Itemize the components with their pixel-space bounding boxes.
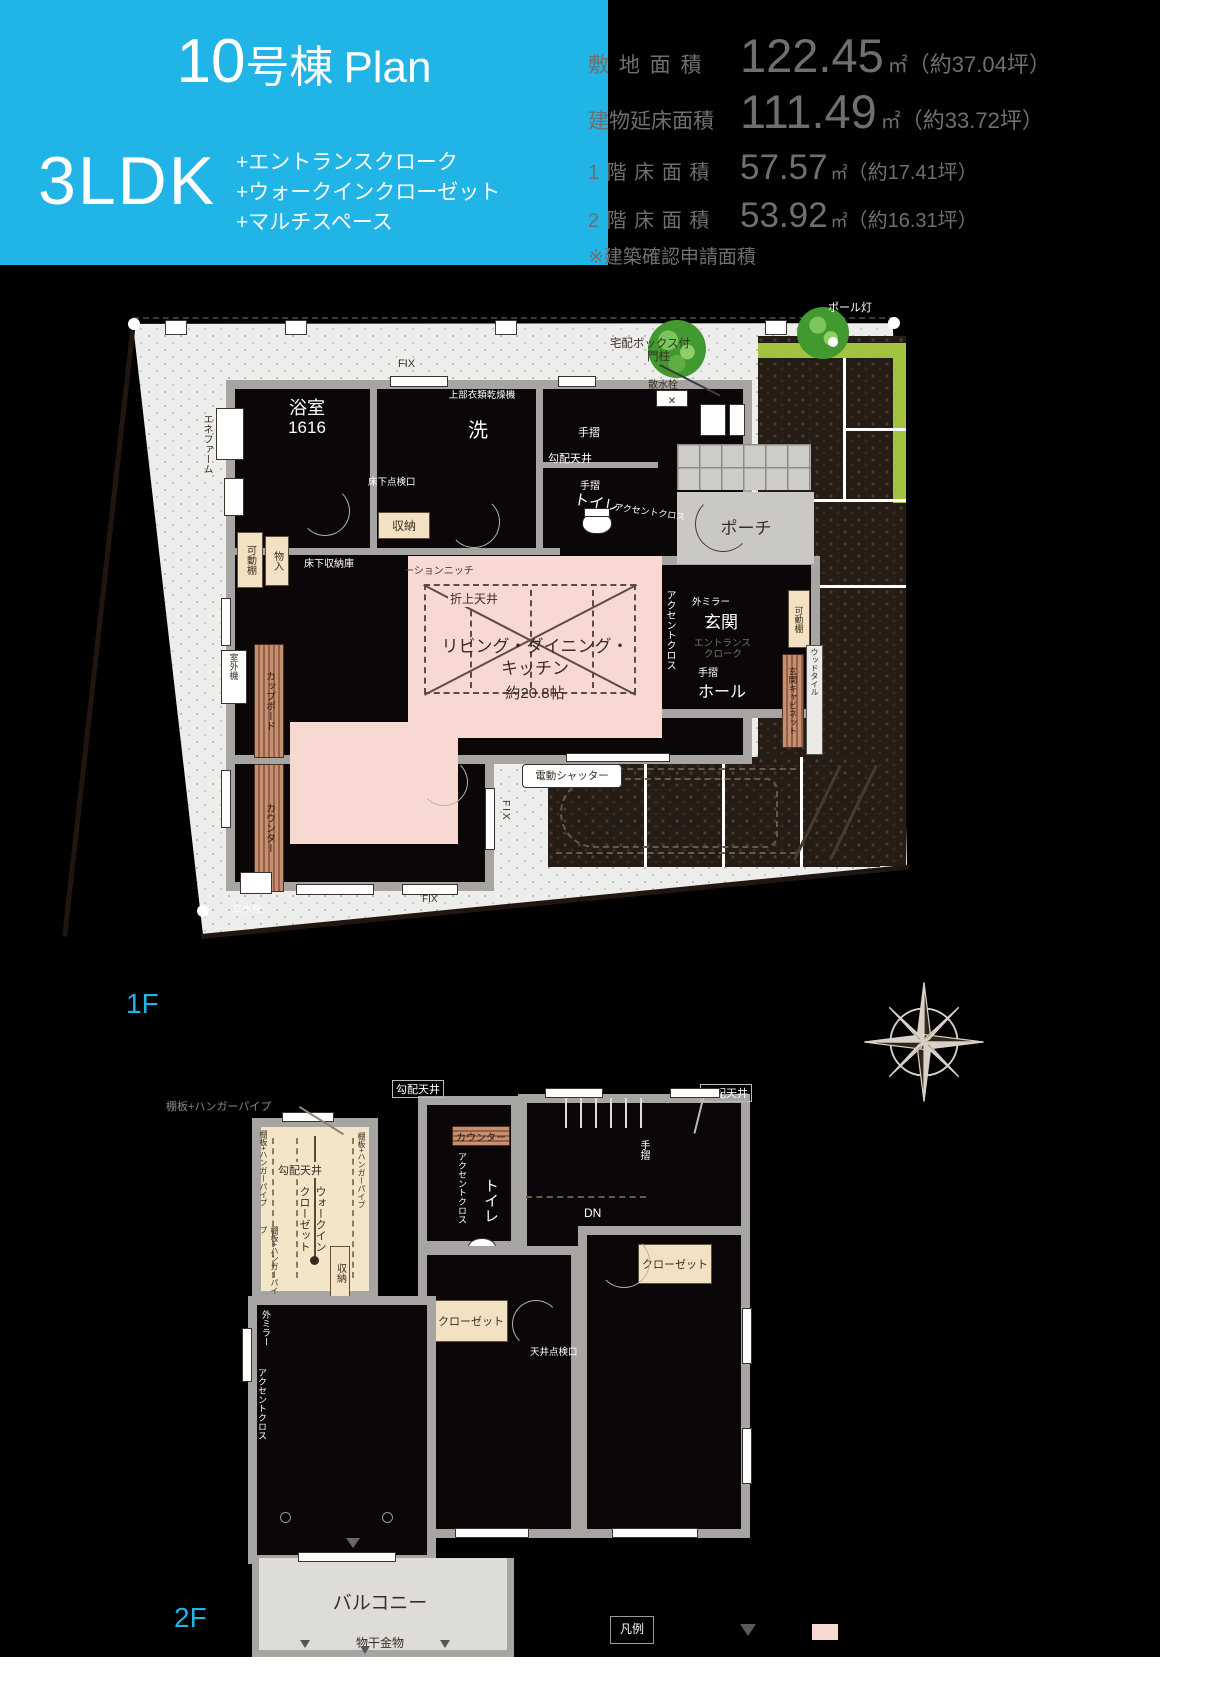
delivery-post-1: 宅配ボックス付 — [560, 338, 690, 351]
light-marker — [382, 1512, 393, 1523]
stair-tread — [625, 1098, 627, 1128]
floor-label-2f: 2F — [174, 1602, 207, 1634]
parking-dashed-line — [556, 852, 796, 854]
building-number: 10 — [176, 27, 245, 96]
window — [558, 376, 596, 387]
ldk-size: 約20.8帖 — [408, 682, 662, 703]
equipment-box — [224, 478, 244, 516]
wash-label: 洗 — [468, 414, 488, 443]
handrail-label: 手摺 — [578, 424, 600, 440]
electric-shutter-label: 電動シャッター — [522, 764, 622, 788]
cupboard-box: カップボード — [254, 644, 284, 758]
cupboard-label: カップボード — [262, 671, 277, 731]
area-tsubo: （約37.04坪） — [908, 47, 1051, 79]
closet-in-label: 物入 — [270, 551, 285, 571]
area-row-total-floor: 建物延床面積 111.49 ㎡ （約33.72坪） — [588, 84, 1044, 139]
accent-cross-label: アクセントクロス — [456, 1152, 469, 1237]
sloped-ceiling-label: 勾配天井 — [392, 1080, 444, 1098]
outdoor-unit-box: 室外機 — [221, 650, 247, 704]
fix-label: FIX — [398, 358, 415, 370]
garden-pole-marker — [828, 337, 838, 347]
entrance-cloak-label: エントランス クローク — [694, 638, 751, 660]
legend-title: 凡例 — [620, 1622, 644, 1636]
light-marker — [280, 1512, 291, 1523]
feature-item: +エントランスクローク — [236, 148, 500, 178]
area-value: 122.45 — [740, 28, 884, 83]
bath-name: 浴室 — [262, 398, 352, 418]
underfloor-storage-label: 床下収納庫 — [304, 555, 354, 570]
bedroom-left-2f — [248, 1296, 436, 1564]
counter-label: カウンター — [456, 1129, 506, 1144]
area-note: ※建築確認申請面積 — [588, 242, 756, 269]
area-unit: ㎡ — [831, 159, 848, 184]
window — [221, 598, 231, 646]
hall-label: ホール — [698, 678, 746, 702]
window — [390, 376, 448, 387]
layout-type: 3LDK — [38, 142, 216, 220]
balcony-label: バルコニー — [290, 1588, 470, 1615]
outdoor-unit-label: 室外機 — [228, 653, 241, 680]
boundary-marker — [128, 318, 140, 330]
closet-label: クローゼット — [642, 1256, 708, 1272]
approach-tiles — [677, 444, 811, 490]
bath-size: 1616 — [262, 418, 352, 438]
window — [221, 770, 231, 828]
window — [670, 1088, 720, 1098]
stair-tread — [580, 1098, 582, 1128]
page-title: 10号棟Plan — [0, 26, 608, 97]
site-boundary-top — [133, 317, 895, 319]
area-tsubo: （約17.41坪） — [848, 156, 978, 185]
stair-tread — [610, 1098, 612, 1128]
area-unit: ㎡ — [888, 49, 908, 78]
wall-segment — [370, 384, 377, 552]
stair-tread — [640, 1098, 642, 1128]
feature-item: +マルチスペース — [236, 208, 500, 238]
counter-box-2f: カウンター — [452, 1126, 510, 1146]
area-label: 敷 地 面 積 — [588, 49, 740, 79]
sprinkler-glyph: ✕ — [668, 396, 676, 407]
feature-list: +エントランスクローク +ウォークインクローゼット +マルチスペース — [236, 148, 500, 238]
movable-shelf-box: 可動棚 — [788, 590, 810, 648]
storage-label: 収納 — [333, 1263, 348, 1283]
entrance-cloak-1: エントランス — [694, 638, 751, 649]
door-arc — [300, 486, 350, 536]
shelf-pipe-label: 棚板+ハンガーパイプ — [258, 1226, 280, 1298]
closet-in-box: 物入 — [265, 536, 289, 586]
delivery-post-2: 門柱 — [560, 351, 670, 364]
area-unit: ㎡ — [831, 207, 848, 232]
window — [742, 1308, 752, 1364]
ext-mirror-label: 外ミラー — [260, 1310, 273, 1358]
boundary-tick — [285, 320, 307, 335]
wic-label-2: クローゼット — [296, 1186, 312, 1296]
delivery-post-label: 宅配ボックス付 門柱 — [560, 338, 690, 364]
movable-shelf-label: 可動棚 — [793, 606, 806, 633]
porch-label: ポーチ — [701, 514, 791, 539]
counter-label: カウンター — [262, 803, 277, 853]
stair-tread — [565, 1098, 567, 1128]
storage-label: 収納 — [392, 517, 416, 534]
accent-cross-label: アクセントクロス — [662, 590, 677, 705]
bath-label: 浴室 1616 — [262, 398, 352, 438]
boundary-tick — [165, 320, 187, 335]
coffered-ceiling-label: 折上天井 — [448, 590, 500, 607]
water-tap-label: 立水栓 — [232, 900, 262, 915]
hanger-dash — [352, 1138, 354, 1278]
entrance-cabinet-label: 玄関キャビネット — [787, 667, 799, 735]
movable-shelf-label: 可動棚 — [243, 545, 258, 575]
ext-mirror-label: 外ミラー — [692, 594, 730, 608]
gate-post-box — [729, 404, 745, 436]
window — [455, 1528, 529, 1538]
stair-tread — [595, 1098, 597, 1128]
dn-label: DN — [584, 1206, 601, 1220]
drying-hook-marker — [360, 1646, 370, 1654]
bedroom-middle-2f — [418, 1246, 580, 1538]
toilet-tank-icon — [584, 508, 610, 517]
entrance-label: 玄関 — [704, 608, 738, 633]
area-value: 57.57 — [740, 148, 828, 188]
drying-hook-marker — [440, 1640, 450, 1648]
area-row-2f: 2 階 床 面 積 53.92 ㎡ （約16.31坪） — [588, 196, 978, 236]
entrance-cabinet-box: 玄関キャビネット — [782, 654, 804, 748]
storage-box: 収納 — [330, 1246, 350, 1300]
fix-label: FIX — [422, 894, 438, 905]
area-row-site: 敷 地 面 積 122.45 ㎡ （約37.04坪） — [588, 28, 1051, 83]
header-block: 10号棟Plan 3LDK +エントランスクローク +ウォークインクローゼット … — [0, 0, 608, 265]
electric-shutter-text: 電動シャッター — [535, 770, 609, 782]
entrance-cloak-2: クローク — [704, 649, 751, 660]
area-label: 2 階 床 面 積 — [588, 204, 740, 233]
shelf-pipe-label: 棚板+ハンガーパイプ — [258, 1130, 269, 1230]
boundary-tick — [765, 320, 787, 335]
porch: ポーチ — [677, 492, 814, 564]
window — [545, 1088, 603, 1098]
area-unit: ㎡ — [881, 105, 901, 134]
area-tsubo: （約16.31坪） — [848, 204, 978, 233]
closet-label: クローゼット — [438, 1313, 504, 1329]
sprinkler-label: 散水栓 — [648, 376, 678, 391]
window — [296, 884, 374, 895]
ldk-name-2: キッチン — [408, 654, 662, 679]
door-arc — [512, 1300, 560, 1348]
water-tap-box — [240, 872, 272, 894]
shutter-opening — [566, 753, 670, 762]
handrail-label: 手摺 — [636, 1140, 651, 1182]
sloped-ceiling-label: 勾配天井 — [548, 450, 592, 466]
legend-pink-swatch — [812, 1624, 838, 1640]
shelf-pipe-callout: 棚板+ハンガーパイプ — [166, 1098, 271, 1114]
door-arc — [598, 1236, 650, 1288]
door-arc — [420, 758, 468, 806]
balcony-door — [298, 1552, 396, 1562]
boundary-marker — [197, 905, 209, 917]
car-outline — [560, 778, 778, 848]
building-suffix: 号棟 — [245, 43, 333, 92]
gate-post-box — [700, 404, 726, 436]
handrail-label: 手摺 — [698, 664, 718, 679]
floor-label-1f: 1F — [126, 988, 159, 1020]
area-row-1f: 1 階 床 面 積 57.57 ㎡ （約17.41坪） — [588, 148, 978, 188]
wic-label-1: ウォークイン — [312, 1186, 328, 1296]
stair-dashed-line — [526, 1196, 646, 1198]
drying-hook-marker — [300, 1640, 310, 1648]
compass-rose-icon — [862, 980, 986, 1104]
legend-box: 凡例 — [610, 1616, 654, 1644]
sprinkler-box: ✕ — [656, 390, 688, 407]
wood-tile-label: ウッドタイル — [809, 648, 820, 696]
pole-light-marker — [888, 317, 900, 329]
equipment-box — [216, 408, 244, 460]
window — [485, 788, 495, 850]
window — [242, 1328, 252, 1382]
underfloor-access-label: 床下点検口 — [368, 474, 416, 488]
movable-shelf-box: 可動棚 — [237, 532, 263, 588]
pole-light-label: ポール灯 — [828, 299, 872, 315]
fix-label: FIX — [500, 800, 511, 822]
accent-cross-label: アクセントクロス — [256, 1368, 269, 1473]
door-arc — [448, 496, 500, 548]
plan-word: Plan — [343, 43, 431, 92]
ene-farm-label: エネファーム — [199, 414, 214, 509]
window — [612, 1528, 698, 1538]
closet-box: クローゼット — [434, 1300, 508, 1342]
niche-label: ーションニッチ — [404, 562, 474, 577]
feature-item: +ウォークインクローゼット — [236, 178, 500, 208]
sloped-ceiling-label: 勾配天井 — [278, 1162, 322, 1178]
boundary-tick — [495, 320, 517, 335]
area-value: 111.49 — [740, 84, 877, 139]
shelf-pipe-label: 棚板+ハンガーパイプ — [356, 1132, 367, 1252]
area-tsubo: （約33.72坪） — [901, 103, 1044, 135]
flyer-canvas: 10号棟Plan 3LDK +エントランスクローク +ウォークインクローゼット … — [0, 0, 1220, 1696]
window — [742, 1428, 752, 1484]
dryer-label: 上部衣類乾燥機 — [432, 390, 532, 401]
wic-label: ウォークイン クローゼット — [296, 1186, 328, 1296]
toilet-room-2f — [418, 1096, 520, 1250]
area-value: 53.92 — [740, 196, 828, 236]
garden-divider — [843, 428, 906, 431]
area-label: 建物延床面積 — [588, 105, 740, 135]
legend-triangle-swatch — [740, 1624, 756, 1636]
balcony-door-marker — [346, 1538, 360, 1548]
wall-segment — [536, 384, 543, 552]
wood-tile-strip: ウッドタイル — [806, 645, 823, 755]
storage-box: 収納 — [378, 512, 430, 539]
area-label: 1 階 床 面 積 — [588, 156, 740, 185]
drying-fixture-label: 物干金物 — [320, 1634, 440, 1651]
